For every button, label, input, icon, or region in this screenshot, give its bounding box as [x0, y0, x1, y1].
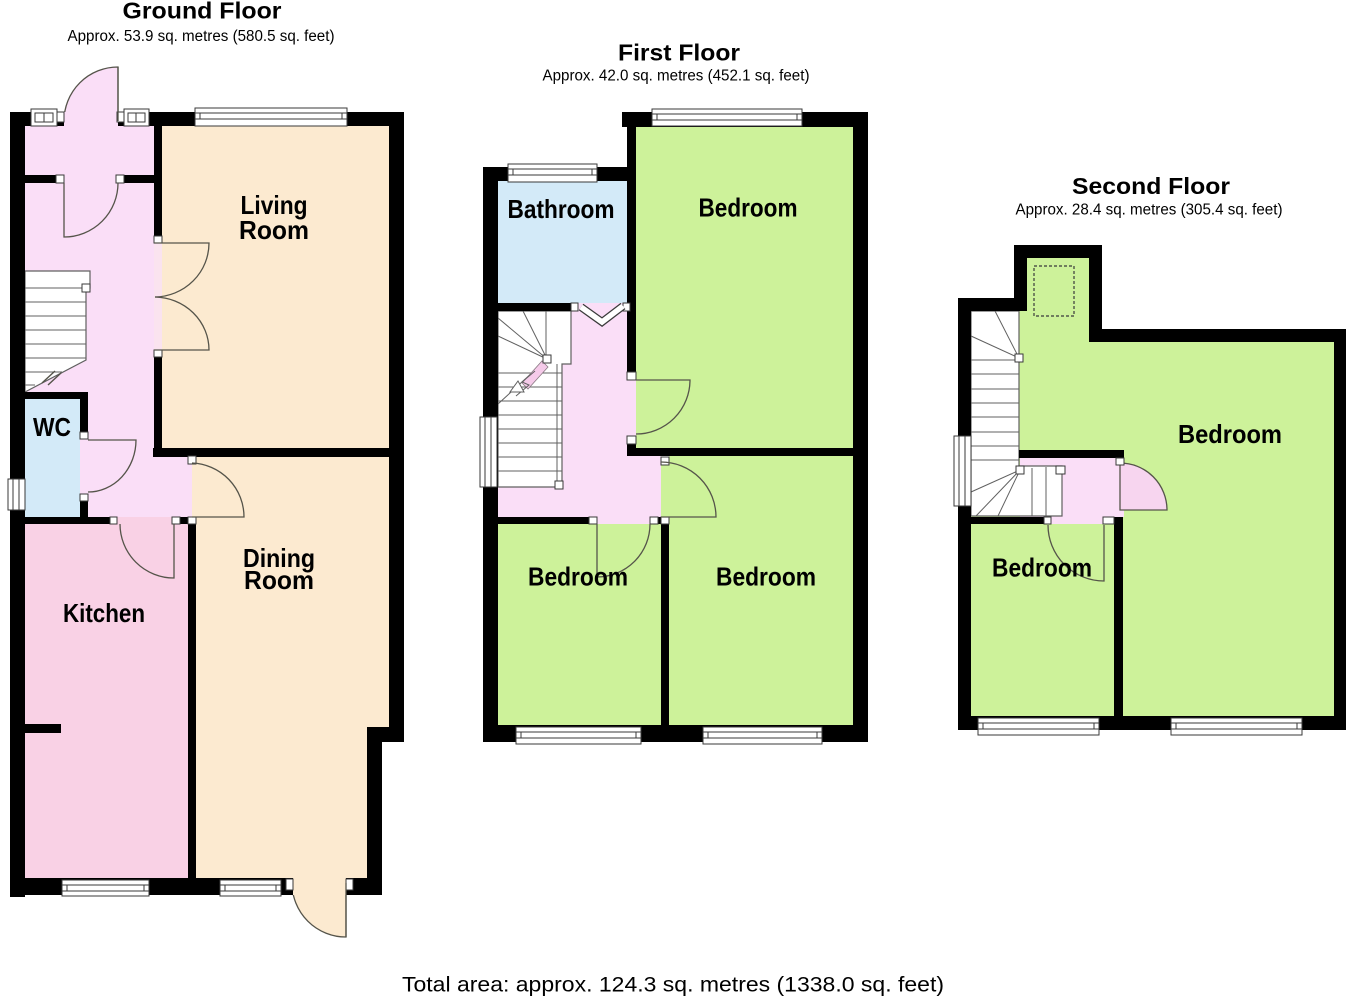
svg-text:Bedroom: Bedroom	[716, 562, 816, 592]
svg-text:Bedroom: Bedroom	[699, 193, 798, 223]
svg-text:Second Floor: Second Floor	[1072, 173, 1230, 199]
svg-text:Total area: approx. 124.3 sq.: Total area: approx. 124.3 sq. metres (13…	[402, 974, 944, 997]
svg-text:Bedroom: Bedroom	[1178, 419, 1282, 449]
svg-text:Bedroom: Bedroom	[528, 562, 628, 592]
svg-text:Approx. 53.9 sq. metres (580.5: Approx. 53.9 sq. metres (580.5 sq. feet)	[68, 28, 335, 45]
svg-text:Bedroom: Bedroom	[992, 553, 1092, 583]
svg-text:WC: WC	[33, 412, 71, 442]
svg-text:Kitchen: Kitchen	[63, 598, 145, 628]
svg-text:Room: Room	[239, 215, 309, 245]
svg-text:Approx. 42.0 sq. metres (452.1: Approx. 42.0 sq. metres (452.1 sq. feet)	[543, 68, 810, 85]
svg-text:Bathroom: Bathroom	[508, 194, 615, 224]
svg-text:First Floor: First Floor	[618, 40, 740, 66]
svg-text:Ground Floor: Ground Floor	[123, 0, 282, 24]
svg-text:Approx. 28.4 sq. metres (305.4: Approx. 28.4 sq. metres (305.4 sq. feet)	[1016, 202, 1283, 219]
svg-text:Room: Room	[244, 565, 314, 595]
